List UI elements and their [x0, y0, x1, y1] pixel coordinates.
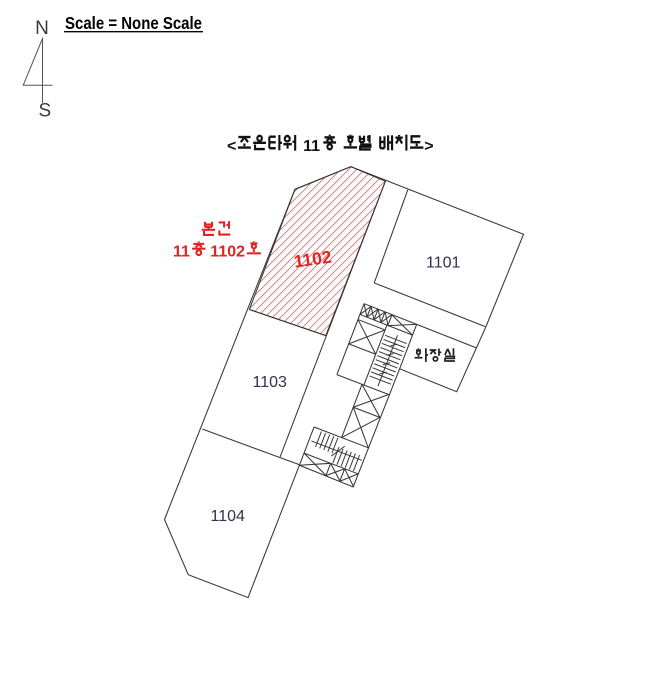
svg-text:1101: 1101: [426, 255, 461, 272]
svg-text:11: 11: [303, 138, 320, 155]
svg-text:1103: 1103: [253, 374, 288, 391]
svg-text:<: <: [227, 138, 236, 155]
svg-text:S: S: [39, 101, 52, 122]
svg-text:Scale = None Scale: Scale = None Scale: [65, 13, 202, 33]
svg-text:>: >: [424, 138, 433, 155]
svg-text:N: N: [35, 18, 49, 39]
svg-text:1102: 1102: [210, 244, 245, 261]
svg-text:1104: 1104: [211, 508, 246, 525]
svg-text:11: 11: [173, 244, 190, 261]
